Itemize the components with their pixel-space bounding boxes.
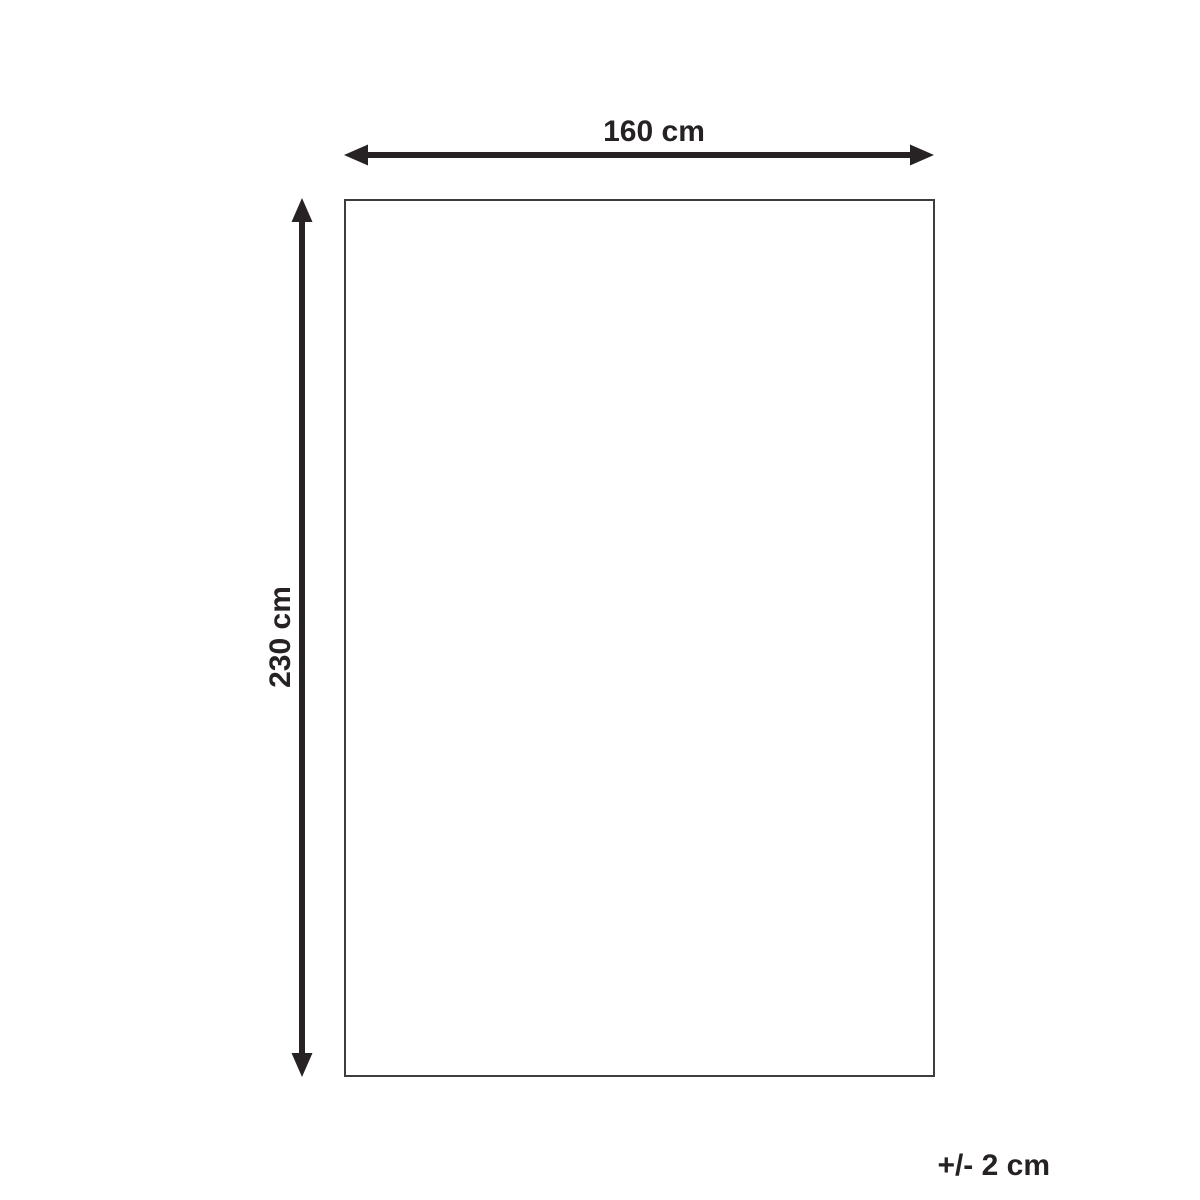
width-dimension-label: 160 cm	[504, 116, 804, 148]
dimension-diagram: 160 cm 230 cm +/- 2 cm	[0, 0, 1200, 1200]
height-dimension-label: 230 cm	[265, 487, 297, 787]
arrowhead-right-icon	[910, 145, 934, 166]
arrowhead-down-icon	[292, 1053, 313, 1077]
tolerance-label: +/- 2 cm	[937, 1150, 1050, 1182]
arrowhead-left-icon	[344, 145, 368, 166]
product-outline-rectangle	[344, 199, 935, 1077]
arrowhead-up-icon	[292, 198, 313, 222]
